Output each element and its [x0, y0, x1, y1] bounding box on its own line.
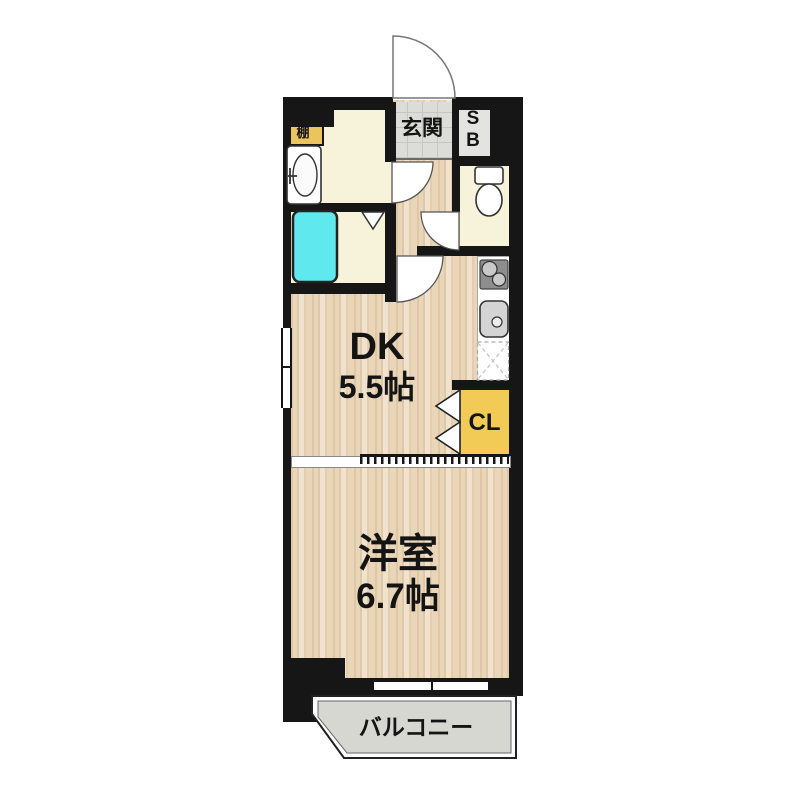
closet-label: CL [460, 390, 509, 456]
entrance-door-arc-icon [393, 36, 455, 98]
toilet-bowl-icon [476, 184, 502, 216]
western-room-name: 洋室 [358, 531, 438, 577]
toilet-door-arc-icon [421, 212, 459, 250]
shoe-box-label-b: B [466, 130, 480, 152]
shoe-box-label-s: S [467, 108, 480, 130]
shelf-label: 棚 [286, 125, 320, 142]
western-room-size: 6.7帖 [356, 577, 440, 617]
closet-bifold-door-icon [436, 422, 460, 454]
bathtub-icon [293, 211, 337, 282]
window-mullion [283, 366, 290, 368]
window-mullion [431, 682, 433, 690]
dk-door-arc-icon [397, 256, 443, 302]
partition-sliding-door-teeth [360, 457, 509, 464]
dk-size: 5.5帖 [339, 369, 416, 406]
stove-burner-icon [493, 273, 506, 286]
dk-label: DK 5.5帖 [297, 322, 457, 410]
vanity-basin-icon [293, 154, 317, 196]
washroom-door-arc-icon [392, 162, 433, 203]
balcony-label: バルコニー [346, 712, 486, 742]
western-room-label: 洋室 6.7帖 [288, 524, 508, 624]
window-left-wall [281, 328, 292, 408]
kitchen-sink-drain-icon [492, 317, 502, 327]
bathroom-folding-door-icon [362, 212, 384, 229]
shoe-box-label: S B [456, 104, 490, 156]
entrance-label: 玄関 [392, 112, 452, 146]
toilet-tank-icon [475, 167, 503, 184]
window-balcony-sliding [372, 680, 490, 692]
dk-name: DK [350, 326, 405, 370]
floor-plan-canvas: 玄関 S B 棚 DK 5.5帖 CL 洋室 6.7帖 バルコニー [0, 0, 799, 800]
